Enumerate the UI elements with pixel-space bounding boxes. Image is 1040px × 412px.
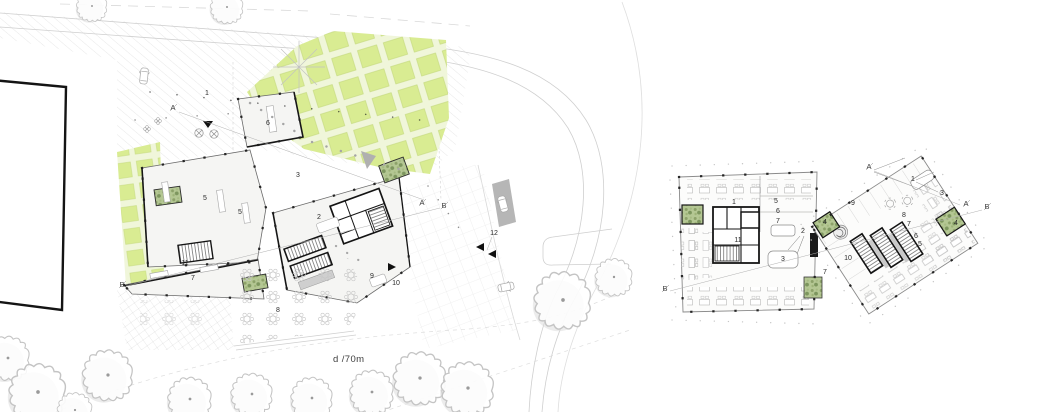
room-label: 9 [370,273,374,280]
room-label: 3 [296,172,300,179]
central-core [713,207,759,263]
tree-icon [290,377,332,412]
floor-plan: 1 5 6 7 2 11 3 9 1 3 8 7 6 5 4 4 10 7 A … [662,145,991,325]
room-label: 11 [734,237,741,244]
plaza-furniture [140,300,204,334]
room-label: 2 [801,228,805,235]
tree-icon [349,370,393,412]
room-label: 11 [181,260,188,267]
courtyard [804,277,822,298]
tree-icon [440,362,493,412]
room-label: 10 [844,255,852,262]
room-label: 10 [392,280,400,287]
room-label: 6 [266,120,270,127]
section-label: A [170,103,175,112]
section-label: A [866,162,871,171]
room-label: 5 [203,195,207,202]
tree-icon [594,258,632,297]
desk-area [687,287,809,308]
scale-label: d /70m [333,354,364,365]
room-label: 3 [781,256,785,263]
plan-drawing: 1 6 3 5 5 2 11 7 9 10 8 12 A A B B d /70… [0,0,1040,412]
desk-area [684,232,716,278]
desk-area [687,179,811,200]
courtyard [682,205,703,224]
architectural-plan-canvas: 1 6 3 5 5 2 11 7 9 10 8 12 A A B B d /70… [0,0,1040,412]
room-label: 3 [940,190,944,197]
section-label: B [662,284,667,293]
tree-icon [533,272,591,332]
room-label: 4 [954,220,958,227]
room-label: 2 [317,214,321,221]
room-label: 7 [823,269,827,276]
tree-icon [230,373,272,412]
meeting-table [771,225,795,236]
room-label: 7 [776,218,780,225]
room-label: 7 [907,221,911,228]
terrace-furniture [228,258,368,344]
room-label: 12 [490,230,498,237]
tree-icon [210,0,243,25]
floor-block-right [801,145,989,325]
section-label: B [119,280,124,289]
room-label: 8 [902,212,906,219]
room-label: 5 [774,198,778,205]
floor-block-left [670,161,824,324]
room-label: 1 [911,176,915,183]
room-label: 6 [776,208,780,215]
room-label: 1 [732,199,736,206]
room-label: 7 [191,275,195,282]
section-label: A [963,199,968,208]
room-label: 4 [823,219,827,226]
site-plan: 1 6 3 5 5 2 11 7 9 10 8 12 A A B B d /70… [0,0,642,412]
room-label: 5 [918,241,922,248]
room-label: 9 [851,200,855,207]
tree-icon [81,350,132,403]
room-label: 5 [238,209,242,216]
section-label: B [441,201,446,210]
section-label: B [984,202,989,211]
existing-building [0,80,66,310]
room-label: 8 [276,307,280,314]
section-label: A [419,198,424,207]
tree-icon [392,352,445,407]
tree-icon [167,377,211,412]
room-label: 1 [205,90,209,97]
room-label: 6 [914,233,918,240]
